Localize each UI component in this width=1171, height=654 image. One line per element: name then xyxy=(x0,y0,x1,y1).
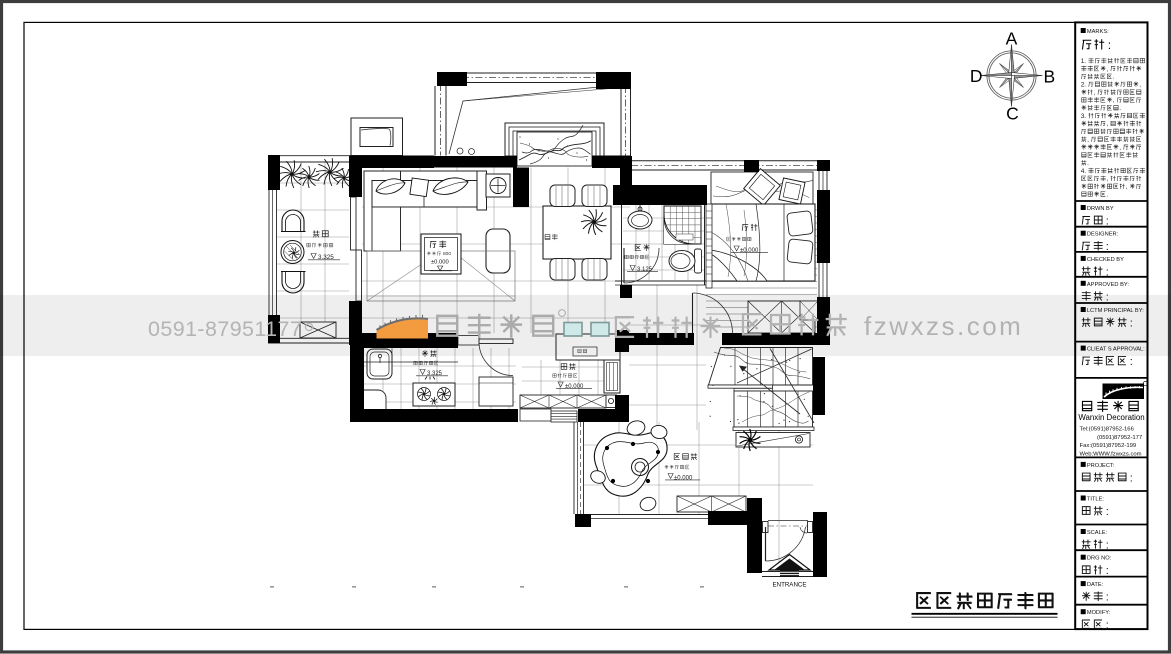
svg-text:Tel:(0591)87952-166: Tel:(0591)87952-166 xyxy=(1080,427,1135,433)
svg-text:.: . xyxy=(1106,191,1108,198)
svg-text::: : xyxy=(1106,506,1109,518)
svg-text:,: , xyxy=(1087,136,1089,143)
svg-text:,: , xyxy=(1119,144,1121,151)
svg-text::: : xyxy=(1106,241,1109,253)
svg-text:.: . xyxy=(1119,105,1121,112)
svg-text:MODIFY:: MODIFY: xyxy=(1087,610,1111,616)
svg-text:Web:WWW.fzwxzs.com: Web:WWW.fzwxzs.com xyxy=(1080,451,1142,457)
svg-text::: : xyxy=(1106,620,1109,632)
svg-text:,: , xyxy=(1106,121,1108,128)
svg-text:fzwxzs.com: fzwxzs.com xyxy=(864,311,1023,341)
svg-text:,: , xyxy=(1094,89,1096,96)
svg-text::: : xyxy=(1106,592,1109,604)
svg-text::: : xyxy=(1108,38,1111,52)
svg-text:D: D xyxy=(970,66,983,86)
svg-text:Fax:(0591)87952-199: Fax:(0591)87952-199 xyxy=(1080,443,1137,449)
svg-text:±0.000: ±0.000 xyxy=(674,476,693,482)
svg-text:APPROVED BY:: APPROVED BY: xyxy=(1087,282,1129,288)
svg-text:DRWN BY: DRWN BY xyxy=(1087,206,1114,212)
svg-text::: : xyxy=(1130,356,1133,368)
svg-text:B: B xyxy=(1044,67,1056,87)
svg-text:,: , xyxy=(1126,184,1128,191)
svg-text:±0.000: ±0.000 xyxy=(565,384,584,390)
svg-text::: : xyxy=(1106,540,1109,552)
svg-text:CHECKED BY: CHECKED BY xyxy=(1087,257,1124,263)
svg-text:3.325: 3.325 xyxy=(427,371,443,377)
svg-text:,: , xyxy=(1139,82,1141,89)
svg-text::: : xyxy=(1106,216,1109,228)
svg-text:PROJECT:: PROJECT: xyxy=(1087,463,1115,469)
svg-text:ENTRANCE: ENTRANCE xyxy=(772,582,806,589)
svg-text:3.125: 3.125 xyxy=(637,267,653,273)
svg-text:.: . xyxy=(1084,82,1086,89)
svg-text:DESIGNER:: DESIGNER: xyxy=(1087,232,1119,238)
svg-text:,: , xyxy=(1106,66,1108,73)
svg-text:TITLE:: TITLE: xyxy=(1087,497,1104,503)
svg-text:±0.000: ±0.000 xyxy=(431,260,449,266)
svg-text:Wanxin Decoration: Wanxin Decoration xyxy=(1078,413,1144,422)
svg-text:0591-87951177: 0591-87951177 xyxy=(148,317,302,341)
svg-text:.: . xyxy=(1084,113,1086,120)
svg-text:C: C xyxy=(1006,104,1019,124)
svg-text:SCALE:: SCALE: xyxy=(1087,530,1108,536)
svg-text:DATE:: DATE: xyxy=(1087,582,1104,588)
svg-text::: : xyxy=(1106,565,1109,577)
svg-text:,: , xyxy=(1113,97,1115,104)
svg-text:,: , xyxy=(1106,176,1108,183)
svg-text::: : xyxy=(1130,472,1133,484)
svg-text:A: A xyxy=(1006,29,1018,49)
svg-text:±0.000: ±0.000 xyxy=(740,248,759,254)
svg-text:(0591)87952-177: (0591)87952-177 xyxy=(1097,435,1142,441)
svg-text::: : xyxy=(1106,266,1109,278)
svg-text:.: . xyxy=(1084,168,1086,175)
svg-text:.: . xyxy=(1087,160,1089,167)
svg-text:DRG NO:: DRG NO: xyxy=(1087,556,1112,562)
svg-text:.: . xyxy=(1113,74,1115,81)
svg-text:.: . xyxy=(1084,58,1086,65)
svg-text:800: 800 xyxy=(443,251,451,257)
svg-text:MARKS:: MARKS: xyxy=(1087,29,1109,35)
